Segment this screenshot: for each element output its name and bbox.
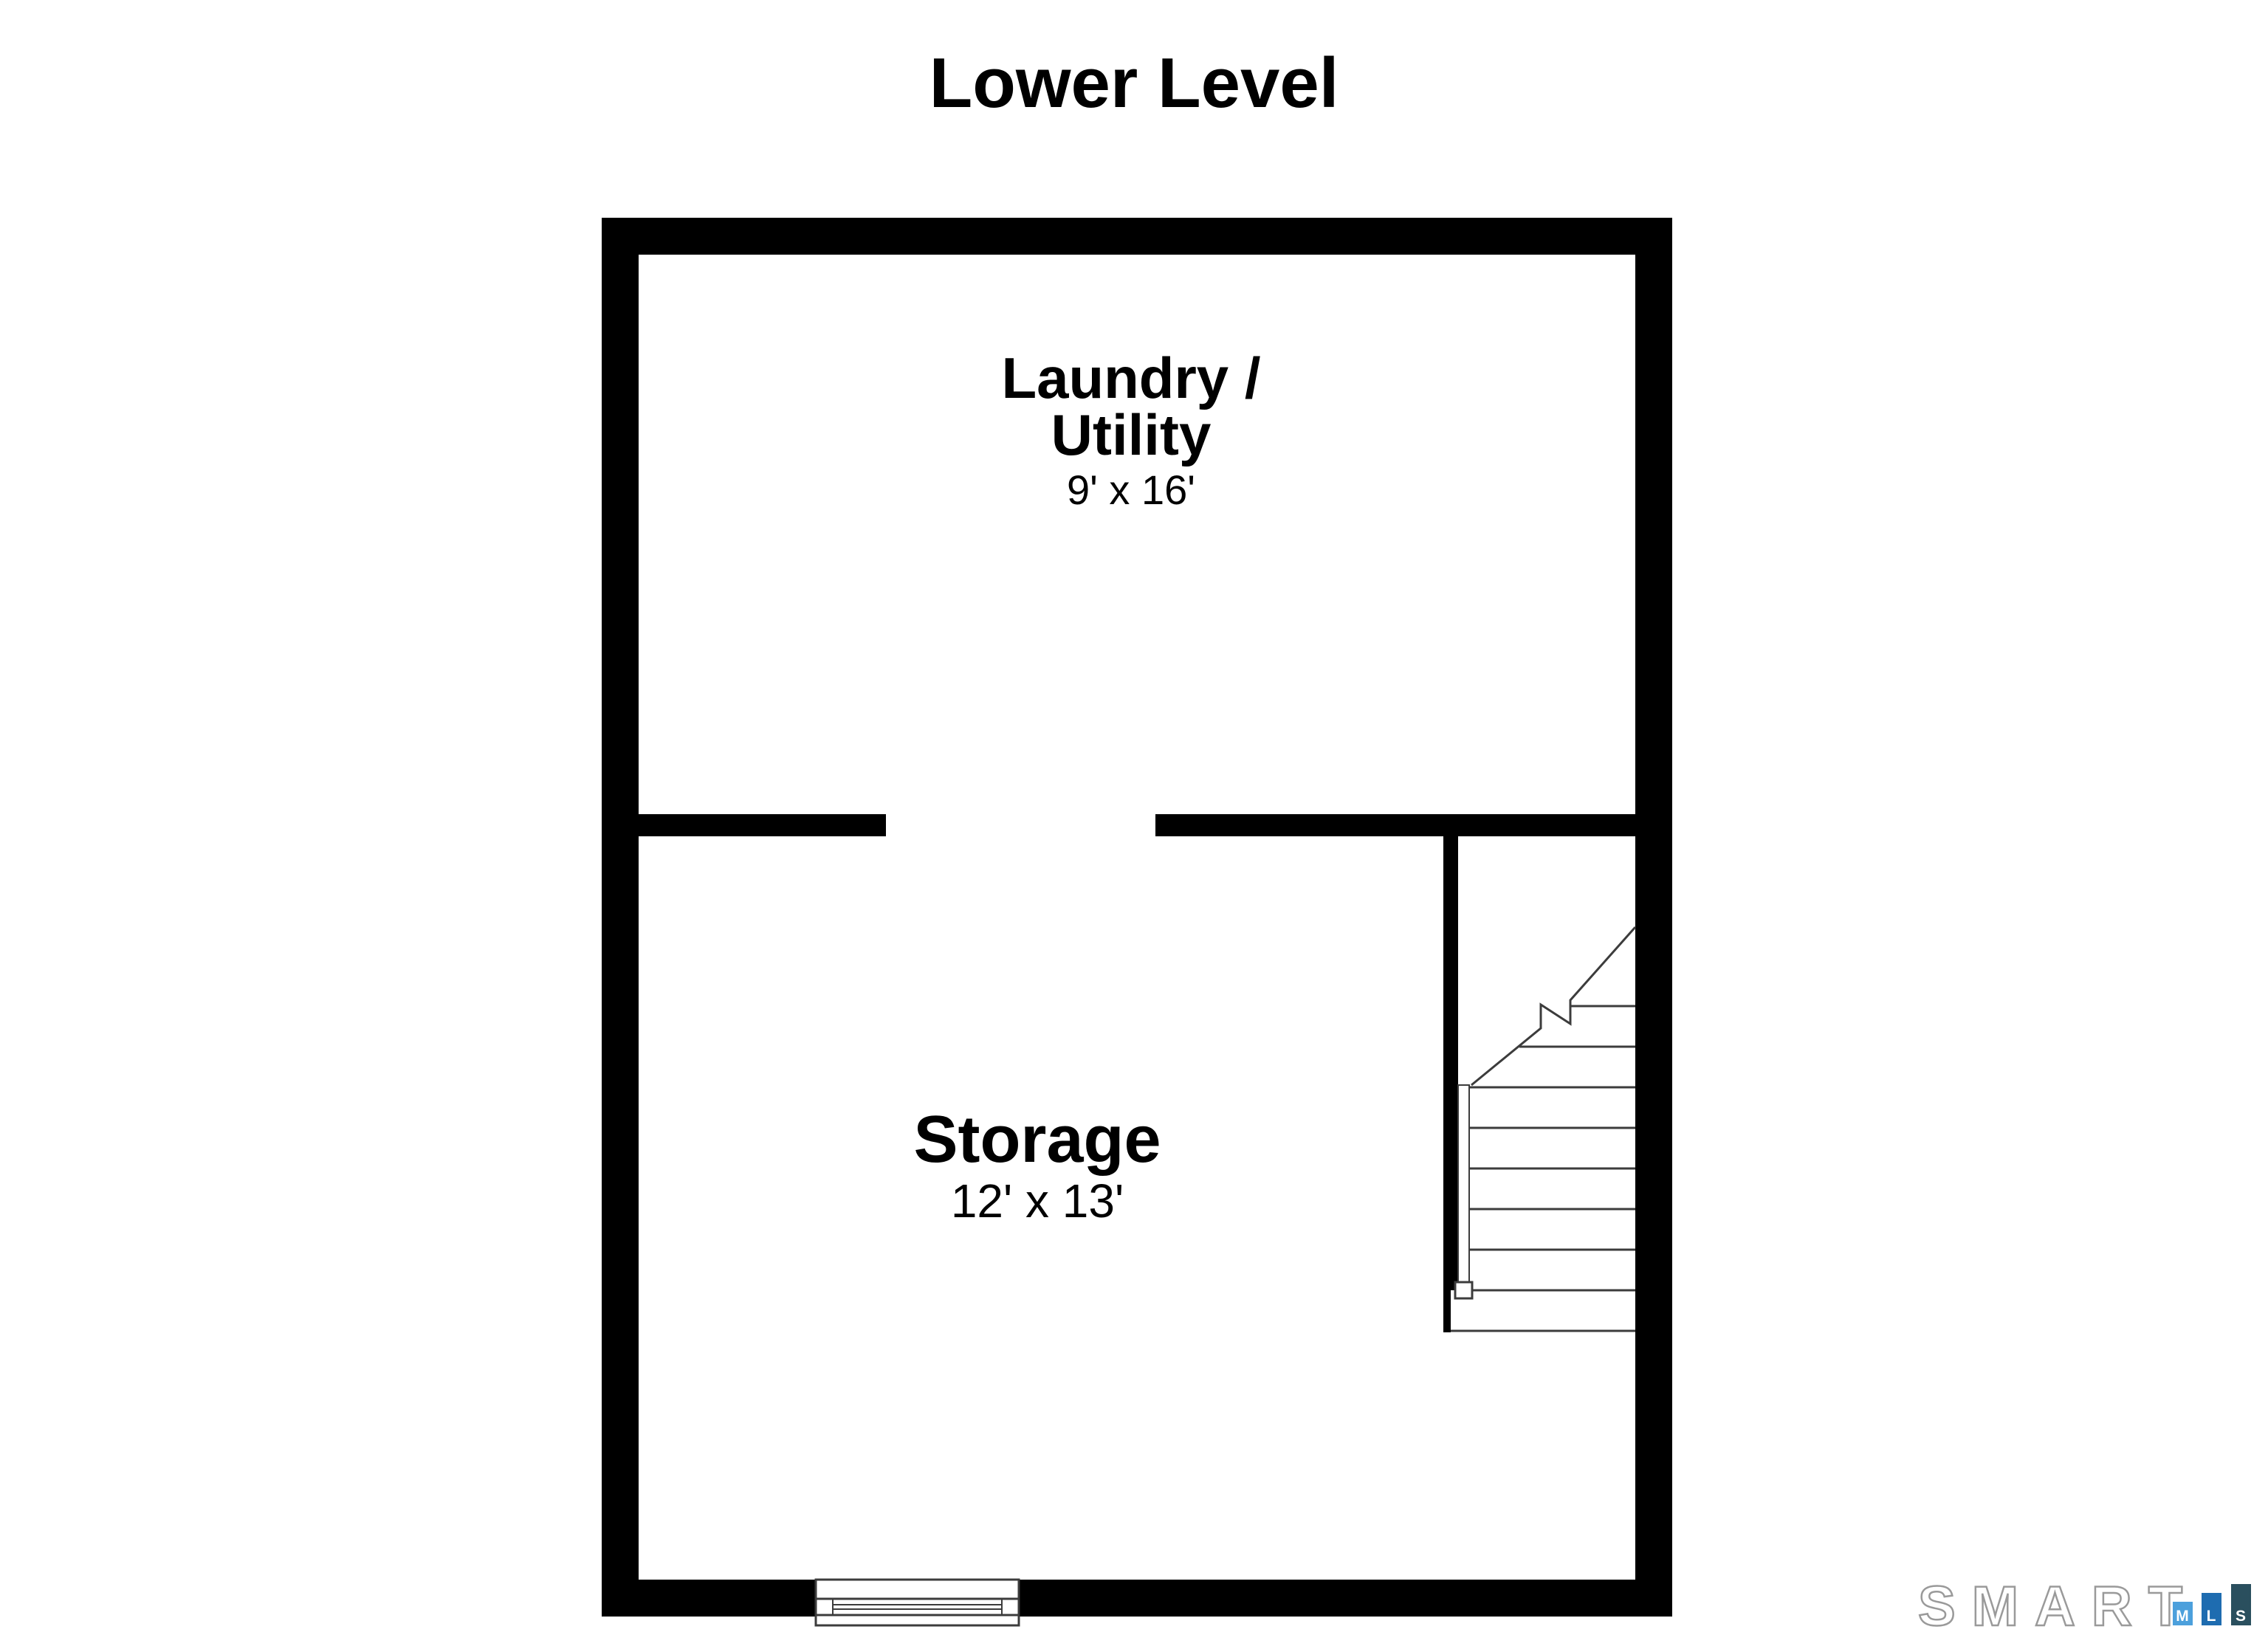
floor-plan-drawing: [0, 0, 2268, 1649]
room-name-line: Utility: [1001, 407, 1260, 464]
wall-left: [602, 218, 639, 1617]
divider-wall-right-segment: [1155, 814, 1635, 836]
wall-top: [602, 218, 1672, 255]
window-symbol: [816, 1580, 1019, 1625]
stair-newel-post: [1455, 1282, 1472, 1298]
wall-right: [1635, 218, 1672, 1617]
divider-wall-left-segment: [639, 814, 886, 836]
room-dimensions: 12' x 13': [913, 1177, 1161, 1225]
stairwell-wall-foot: [1443, 1290, 1451, 1332]
room-dimensions: 9' x 16': [1001, 468, 1260, 512]
room-name-line: Laundry /: [1001, 350, 1260, 407]
wall-bottom: [602, 1580, 1672, 1617]
mls-tile-letter-m: M: [2176, 1608, 2189, 1625]
smart-mls-logo: SMART M L S: [1915, 1569, 2255, 1631]
room-label-storage: Storage 12' x 13': [913, 1106, 1161, 1225]
window-frame: [816, 1580, 1019, 1625]
staircase-symbol: [1451, 927, 1635, 1331]
floor-plan-page: Lower Level: [0, 0, 2268, 1649]
mls-tile-letter-l: L: [2207, 1608, 2216, 1625]
smart-logo-text: SMART: [1918, 1575, 2199, 1631]
room-name-line: Storage: [913, 1106, 1161, 1174]
stairwell-wall: [1443, 836, 1458, 1290]
stair-stringer: [1458, 1085, 1469, 1283]
room-label-laundry-utility: Laundry / Utility 9' x 16': [1001, 350, 1260, 512]
mls-tile-letter-s: S: [2236, 1608, 2246, 1625]
